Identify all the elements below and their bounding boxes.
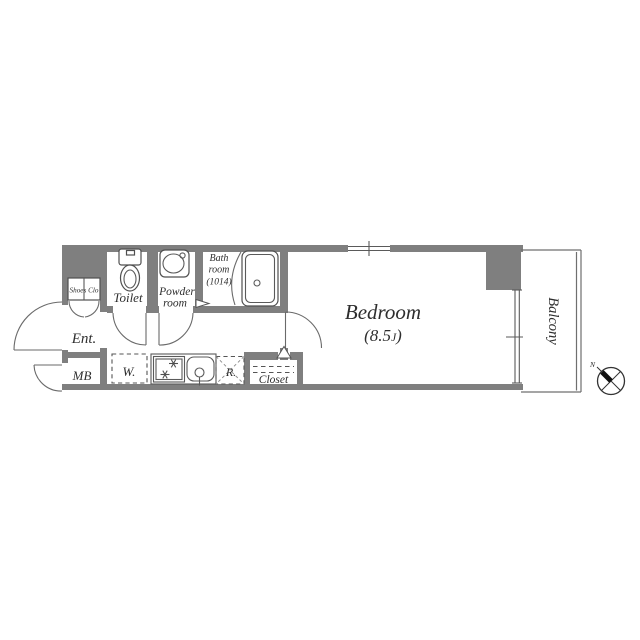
wall-closet-top-left — [244, 352, 278, 360]
powder-door-swing-arc — [159, 313, 193, 345]
balcony-label: Balcony — [545, 297, 561, 345]
shoes-closet-label: Shoes Clo — [70, 287, 99, 295]
window-top — [348, 241, 390, 256]
wall-toilet-powder-divider — [147, 252, 158, 312]
wall-corner-block — [62, 245, 105, 280]
bathtub-outer — [242, 251, 278, 306]
toilet-label: Toilet — [113, 290, 143, 305]
kitchen-area: W. R. — [112, 354, 244, 386]
floor-plan-drawing: Balcony Shoes Clo — [0, 0, 640, 640]
stove-burner-2 — [169, 360, 178, 368]
compass-north-arm — [602, 372, 611, 381]
toilet-door — [113, 313, 146, 345]
window-bedroom-balcony — [506, 290, 523, 383]
shoes-closet: Shoes Clo — [68, 278, 100, 317]
wall-ent-hall-upper — [100, 252, 107, 312]
toilet-room: Toilet — [113, 249, 143, 305]
shoes-closet-fold-door-right — [85, 301, 99, 317]
wall-strip-between-doors — [146, 306, 159, 313]
wall-strip-toilet-left — [107, 306, 113, 313]
compass: N — [589, 360, 625, 395]
floor-plan-page: Balcony Shoes Clo — [0, 0, 640, 640]
bedroom-door-swing-arc — [286, 312, 322, 348]
toilet-bowl — [121, 265, 140, 291]
refrigerator-space-label: R. — [225, 365, 236, 379]
bedroom-label: Bedroom — [345, 300, 421, 324]
closet-label: Closet — [259, 374, 289, 386]
wall-ent-mb-divider — [62, 352, 103, 358]
wall-pillar-top-right — [486, 252, 521, 290]
stove-inner — [156, 359, 182, 380]
mb-door-swing-arc — [34, 365, 62, 391]
entrance-door-swing-arc — [14, 302, 62, 350]
wall-strip-bath-bottom — [193, 306, 288, 313]
powder-room-label-line1: Powder — [158, 286, 195, 298]
powder-room: Powder room — [158, 250, 195, 310]
powder-room-door — [159, 313, 193, 345]
stove-outer — [154, 357, 185, 383]
bath-door-fold-arc — [232, 252, 241, 305]
bedroom-door — [286, 312, 322, 348]
entrance-door — [14, 302, 62, 350]
bedroom-size-suffix: ) — [395, 326, 402, 345]
bath-room-label-line2: room — [209, 265, 230, 276]
closet: Closet — [253, 367, 294, 387]
wall-left-upper — [62, 280, 68, 305]
stove-burner-1 — [161, 371, 170, 379]
bedroom: Bedroom (8.5J) — [345, 300, 421, 345]
bath-room: Bath room (1014) — [206, 251, 278, 306]
compass-north-tail — [597, 367, 602, 372]
toilet-door-swing-arc — [113, 313, 146, 345]
wall-bath-bedroom — [280, 245, 288, 312]
kitchen-sink-drain — [195, 368, 204, 377]
wall-ent-hall-lower — [100, 348, 107, 390]
powder-room-label-line2: room — [163, 298, 187, 310]
compass-north-label: N — [589, 360, 596, 369]
closet-door-direction-marker — [277, 347, 291, 359]
washer-space-label: W. — [123, 364, 136, 379]
wall-bottom — [62, 384, 523, 390]
bedroom-size-label: (8.5J) — [364, 326, 402, 345]
shoes-closet-fold-door-left — [69, 301, 84, 317]
balcony: Balcony — [521, 250, 581, 392]
wall-closet-right — [297, 355, 303, 390]
meter-box-door — [34, 365, 62, 391]
bedroom-size-prefix: (8.5 — [364, 326, 391, 345]
bath-room-label-line1: Bath — [210, 253, 229, 264]
entrance-label: Ent. — [71, 331, 97, 347]
meter-box-label: MB — [72, 368, 92, 383]
refrigerator-space: R. — [216, 357, 244, 385]
bath-room-label-line3: (1014) — [206, 277, 231, 288]
toilet-flush-button — [127, 251, 135, 256]
wall-top-right — [390, 245, 523, 252]
